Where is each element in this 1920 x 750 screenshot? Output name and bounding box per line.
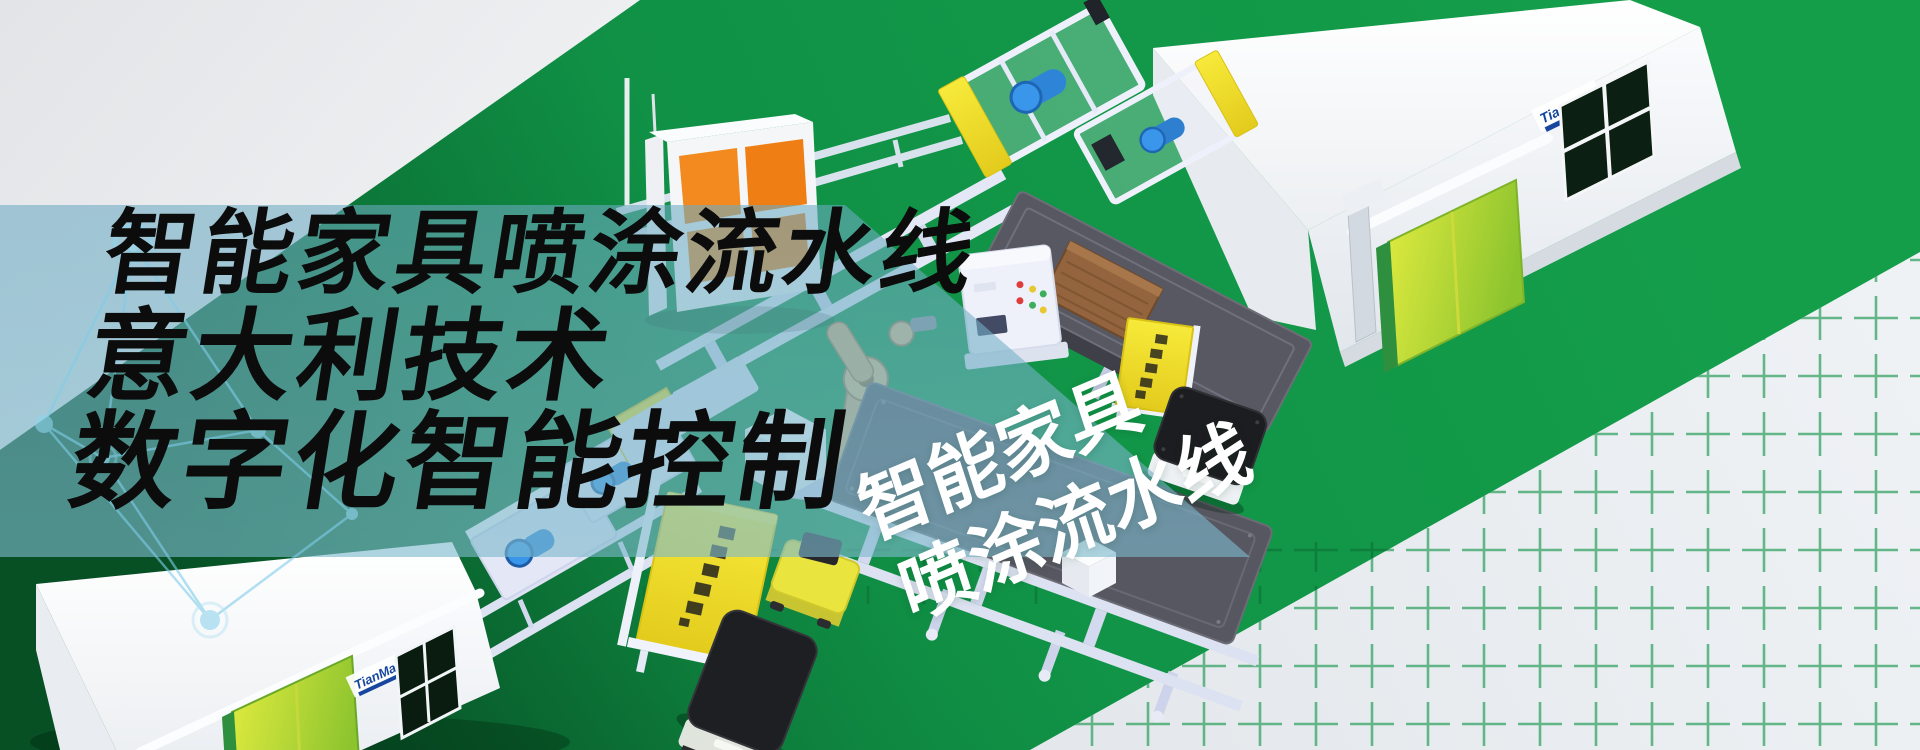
hero-banner: TianMai — [0, 0, 1920, 750]
headline-line-1: 智能家具喷涂流水线 — [97, 208, 985, 300]
headline-line-2: 意大利技术 — [80, 307, 621, 407]
headline-line-3: 数字化智能控制 — [63, 410, 857, 516]
